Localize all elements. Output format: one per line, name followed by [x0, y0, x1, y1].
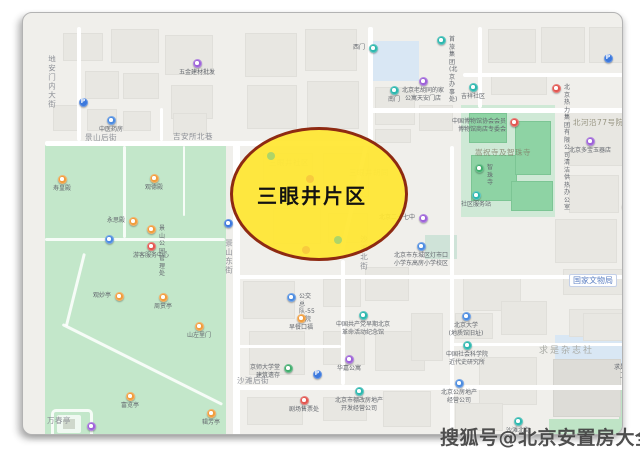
park-path	[45, 238, 225, 241]
map-building	[305, 29, 357, 71]
ghost-poi-icon	[267, 152, 275, 160]
poi-label: 观德殿	[109, 184, 199, 192]
poi-label: 吉祥社区	[428, 93, 518, 101]
ghost-poi-icon	[302, 246, 310, 254]
map-road	[160, 108, 163, 141]
ghost-poi-icon	[334, 236, 342, 244]
parking-icon[interactable]: P	[623, 171, 624, 180]
poi-pin-icon[interactable]	[287, 293, 296, 302]
poi-label: 北京大学 (地质馆旧址)	[421, 322, 511, 337]
map-building	[111, 29, 159, 63]
poi-label: 寿皇殿	[22, 185, 107, 193]
poi-pin-icon[interactable]	[115, 292, 124, 301]
map-road	[368, 108, 623, 113]
poi-label: 华嘉公寓	[304, 365, 394, 373]
map-building	[569, 175, 619, 213]
poi-pin-icon[interactable]	[586, 137, 595, 146]
boxed-label: 国家文物局	[569, 274, 617, 287]
street-label: 吉安所北巷	[173, 133, 213, 141]
poi-pin-icon[interactable]	[300, 396, 309, 405]
street-label: 求是杂志社	[539, 347, 594, 356]
map-building	[63, 33, 103, 61]
street-label: 景山后街	[85, 134, 117, 142]
poi-label: 中医药房	[66, 126, 156, 134]
parking-icon[interactable]: P	[79, 98, 88, 107]
map-road	[233, 345, 341, 348]
poi-pin-icon[interactable]	[224, 219, 233, 228]
ghost-poi-icon	[306, 175, 314, 183]
poi-pin-icon[interactable]	[107, 116, 116, 125]
poi-label: 北京市东城区灯市口 小学东高房小学校区	[376, 252, 466, 267]
poi-pin-icon[interactable]	[147, 242, 156, 251]
page-root: { "annotation": { "title": "三眼井片区" }, "w…	[0, 0, 640, 456]
poi-label: 北京多宝玉器店	[545, 147, 623, 155]
map-road	[453, 343, 623, 346]
poi-pin-icon[interactable]	[552, 84, 561, 93]
map-building	[375, 129, 411, 143]
poi-pin-icon[interactable]	[87, 422, 96, 431]
street-label: 万春亭	[47, 417, 71, 425]
poi-pin-icon[interactable]	[105, 235, 114, 244]
poi-label: 北京公房地产 经营公司	[414, 389, 504, 404]
poi-label: 观妙亭	[93, 292, 111, 300]
poi-label: 社区服务站	[431, 201, 521, 209]
street-label: 景山东街	[225, 239, 233, 275]
map-building	[365, 267, 409, 301]
poi-pin-icon[interactable]	[469, 83, 478, 92]
poi-label: 富览亭	[85, 402, 175, 410]
map-building	[245, 33, 297, 77]
map-building	[583, 313, 623, 341]
poi-label: 中国博物馆协会会员 博物馆商店专委会	[452, 118, 506, 133]
poi-pin-icon[interactable]	[159, 293, 168, 302]
poi-label: 中国共产党早期北京 革命活动纪念馆	[318, 321, 408, 336]
area-title: 三眼井片区	[257, 180, 381, 209]
poi-pin-icon[interactable]	[437, 36, 446, 45]
poi-label: 游客服务中心	[106, 252, 196, 260]
poi-label: 中国社会科学院 近代史研究所	[422, 351, 512, 366]
map-building	[541, 27, 585, 63]
poi-pin-icon[interactable]	[355, 387, 364, 396]
highlight-building	[373, 41, 419, 81]
poi-pin-icon[interactable]	[126, 392, 135, 401]
poi-pin-icon[interactable]	[297, 314, 306, 323]
poi-pin-icon[interactable]	[369, 44, 378, 53]
poi-label: 周赏亭	[118, 303, 208, 311]
poi-label: 北京市棚改房地产 开发经营公司	[314, 397, 404, 412]
poi-label: 西门	[353, 44, 365, 52]
poi-pin-icon[interactable]	[419, 214, 428, 223]
poi-label: 五金建材批发	[152, 69, 242, 77]
poi-pin-icon[interactable]	[193, 59, 202, 68]
poi-pin-icon[interactable]	[417, 242, 426, 251]
parking-icon[interactable]: P	[604, 54, 613, 63]
street-label: 地安门内大街	[48, 55, 56, 109]
map-building	[488, 29, 536, 63]
street-label: 北河沿77号院	[573, 119, 623, 127]
poi-pin-icon[interactable]	[622, 202, 624, 211]
map-building	[247, 85, 297, 129]
poi-pin-icon[interactable]	[462, 312, 471, 321]
map-building	[85, 71, 119, 99]
poi-pin-icon[interactable]	[129, 217, 138, 226]
poi-pin-icon[interactable]	[147, 225, 156, 234]
street-label: 嵩祝寺及智珠寺	[475, 149, 531, 157]
poi-pin-icon[interactable]	[284, 364, 293, 373]
poi-pin-icon[interactable]	[510, 118, 519, 127]
poi-pin-icon[interactable]	[472, 191, 481, 200]
poi-label: 智珠寺	[487, 164, 493, 187]
map-building	[307, 81, 359, 129]
poi-label: 求是杂志社 卫生所	[584, 364, 623, 379]
poi-label: 京师大学堂 建筑遗存	[250, 364, 280, 379]
map-building	[123, 73, 159, 99]
poi-pin-icon[interactable]	[419, 77, 428, 86]
park-path	[183, 146, 185, 216]
map-canvas[interactable]: 景山后街吉安所北巷地安门内大街景山东街沙滩北街沙滩后街北河沿大街北河沿77号院嵩…	[22, 12, 623, 435]
poi-label: 永思殿	[107, 217, 125, 225]
map-road	[233, 275, 623, 279]
poi-pin-icon[interactable]	[195, 322, 204, 331]
poi-label: 山左里门	[154, 332, 244, 340]
watermark: 搜狐号@北京安置房大全	[440, 423, 640, 450]
poi-pin-icon[interactable]	[58, 175, 67, 184]
map-building	[555, 219, 617, 263]
map-road	[77, 27, 81, 141]
poi-pin-icon[interactable]	[150, 174, 159, 183]
poi-label: 辑芳亭	[166, 419, 256, 427]
highlight-ellipse: 三眼井片区	[230, 127, 408, 261]
map-road	[463, 73, 623, 77]
poi-pin-icon[interactable]	[345, 355, 354, 364]
poi-pin-icon[interactable]	[455, 379, 464, 388]
poi-pin-icon[interactable]	[207, 409, 216, 418]
poi-pin-icon[interactable]	[463, 341, 472, 350]
map-building	[568, 108, 623, 166]
poi-pin-icon[interactable]	[359, 311, 368, 320]
poi-pin-icon[interactable]	[475, 164, 484, 173]
